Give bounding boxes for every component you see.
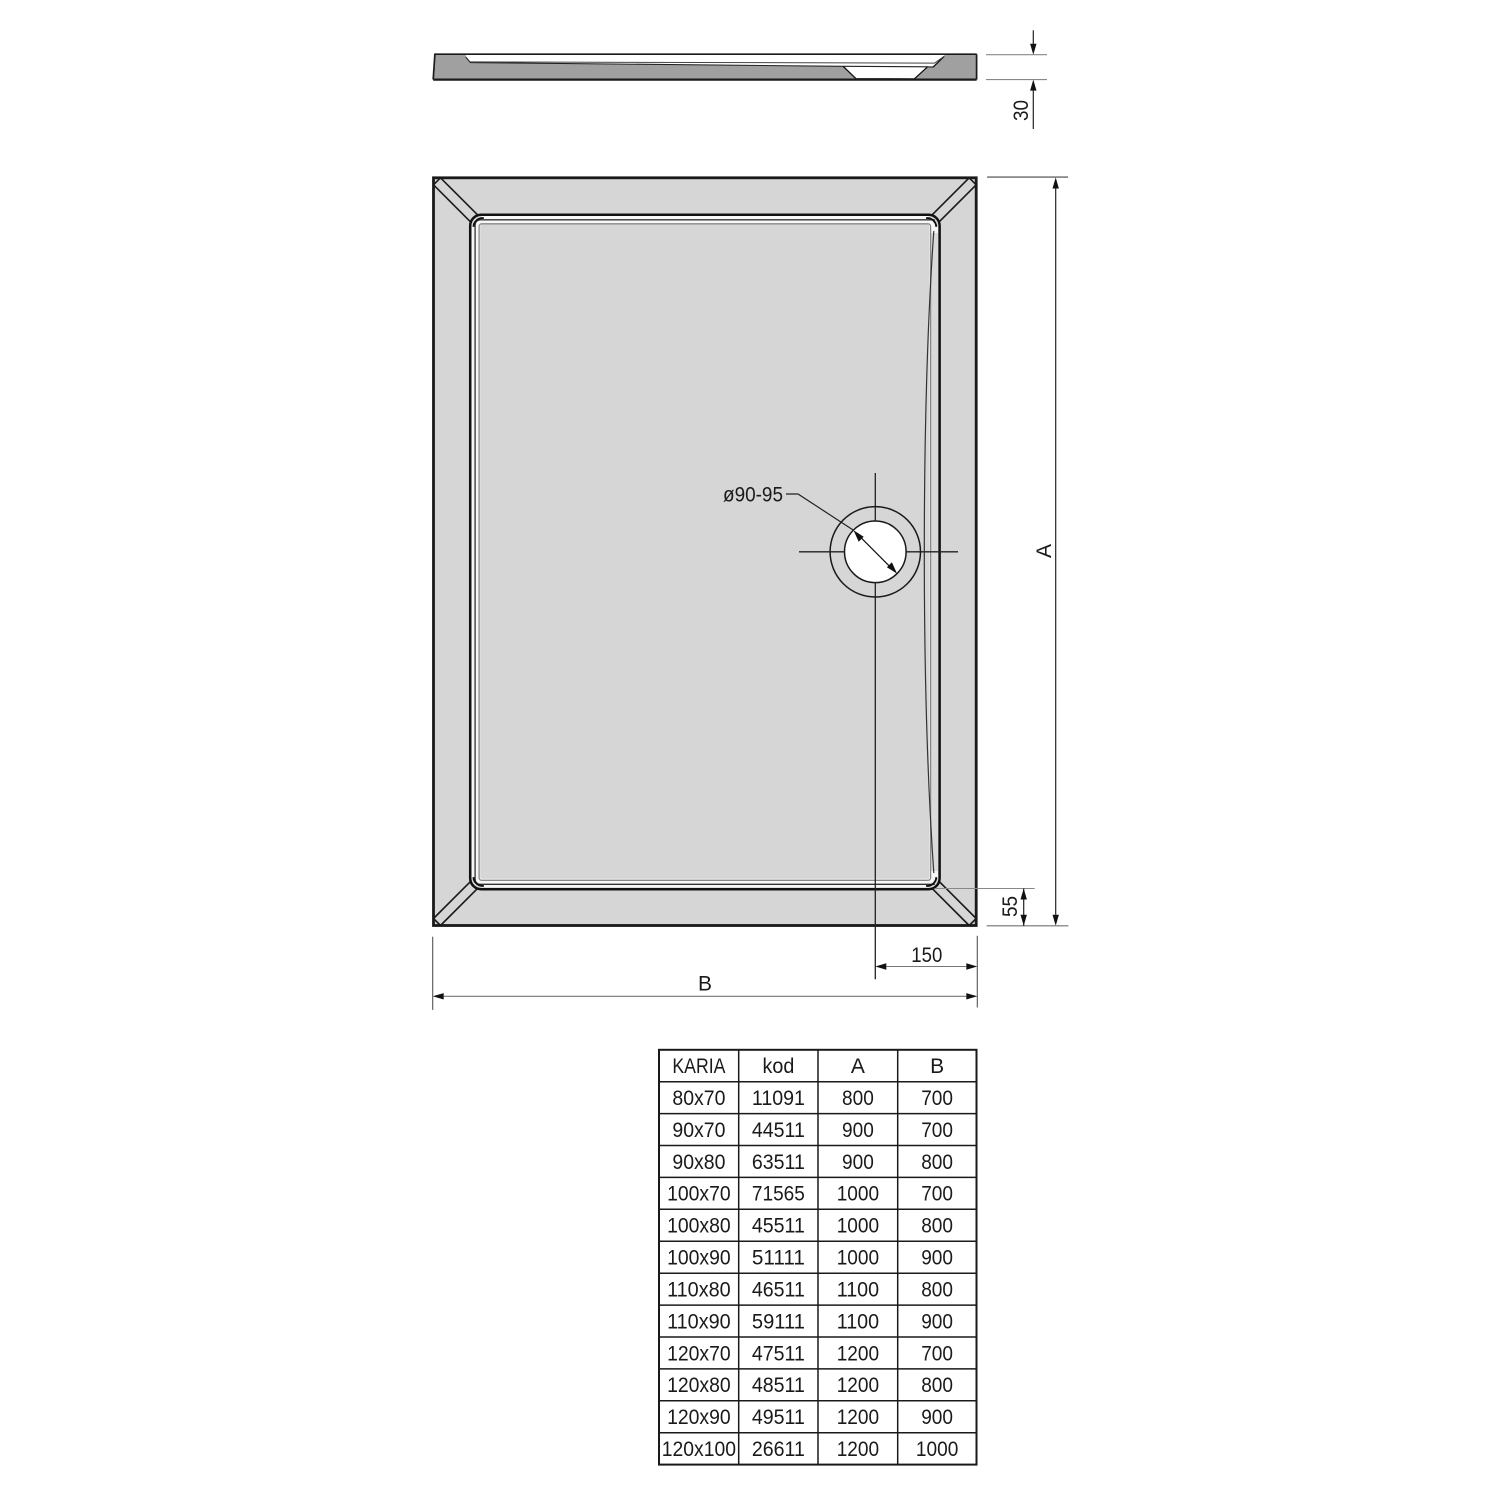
svg-text:800: 800 (842, 1087, 874, 1110)
svg-text:900: 900 (921, 1406, 953, 1429)
svg-text:ø90-95: ø90-95 (723, 484, 783, 507)
svg-text:kod: kod (763, 1055, 795, 1078)
svg-text:1000: 1000 (837, 1247, 879, 1270)
svg-text:120x100: 120x100 (662, 1438, 736, 1461)
svg-text:800: 800 (921, 1374, 953, 1397)
svg-text:700: 700 (921, 1342, 953, 1365)
svg-text:11091: 11091 (752, 1087, 805, 1110)
svg-text:A: A (1033, 544, 1056, 558)
svg-text:1100: 1100 (837, 1279, 879, 1302)
svg-text:1200: 1200 (837, 1406, 879, 1429)
svg-text:1200: 1200 (837, 1342, 879, 1365)
svg-text:63511: 63511 (752, 1151, 805, 1174)
svg-text:120x80: 120x80 (667, 1374, 731, 1397)
svg-text:46511: 46511 (752, 1279, 805, 1302)
svg-text:110x80: 110x80 (667, 1279, 731, 1302)
svg-text:110x90: 110x90 (667, 1310, 731, 1333)
svg-text:800: 800 (921, 1279, 953, 1302)
svg-text:120x70: 120x70 (667, 1342, 731, 1365)
svg-text:100x90: 100x90 (667, 1247, 731, 1270)
svg-text:KARIA: KARIA (672, 1055, 725, 1078)
svg-text:900: 900 (921, 1247, 953, 1270)
svg-text:47511: 47511 (752, 1342, 805, 1365)
svg-text:800: 800 (921, 1215, 953, 1238)
svg-text:90x70: 90x70 (672, 1119, 725, 1142)
svg-text:800: 800 (921, 1151, 953, 1174)
svg-text:900: 900 (842, 1151, 874, 1174)
svg-text:1000: 1000 (837, 1183, 879, 1206)
svg-text:700: 700 (921, 1119, 953, 1142)
svg-text:48511: 48511 (752, 1374, 805, 1397)
svg-text:30: 30 (1010, 100, 1033, 121)
svg-text:90x80: 90x80 (672, 1151, 725, 1174)
svg-text:71565: 71565 (752, 1183, 805, 1206)
svg-text:80x70: 80x70 (672, 1087, 725, 1110)
svg-text:700: 700 (921, 1087, 953, 1110)
svg-text:44511: 44511 (752, 1119, 805, 1142)
svg-text:59111: 59111 (752, 1310, 805, 1333)
svg-text:B: B (698, 972, 712, 995)
svg-text:1200: 1200 (837, 1438, 879, 1461)
svg-text:51111: 51111 (752, 1247, 805, 1270)
svg-text:1000: 1000 (916, 1438, 958, 1461)
svg-text:700: 700 (921, 1183, 953, 1206)
svg-text:900: 900 (921, 1310, 953, 1333)
svg-text:B: B (930, 1055, 944, 1078)
svg-text:1100: 1100 (837, 1310, 879, 1333)
svg-text:100x80: 100x80 (667, 1215, 731, 1238)
svg-text:55: 55 (999, 896, 1022, 917)
svg-text:1000: 1000 (837, 1215, 879, 1238)
svg-text:A: A (851, 1055, 865, 1078)
svg-text:900: 900 (842, 1119, 874, 1142)
svg-text:120x90: 120x90 (667, 1406, 731, 1429)
svg-text:150: 150 (911, 944, 942, 967)
svg-text:1200: 1200 (837, 1374, 879, 1397)
svg-text:45511: 45511 (752, 1215, 805, 1238)
svg-text:49511: 49511 (752, 1406, 805, 1429)
svg-text:100x70: 100x70 (667, 1183, 731, 1206)
svg-text:26611: 26611 (752, 1438, 805, 1461)
